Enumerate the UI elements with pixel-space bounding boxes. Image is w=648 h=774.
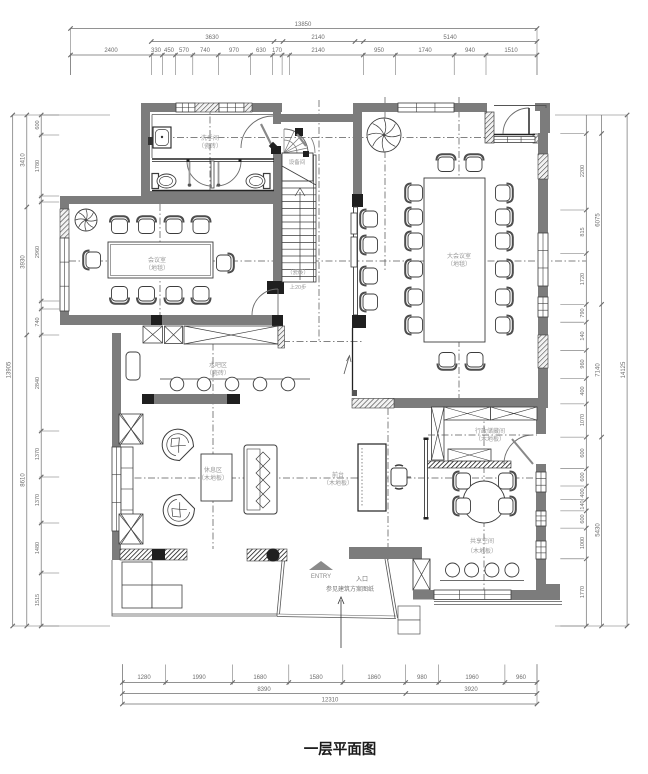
svg-text:570: 570: [179, 48, 190, 54]
svg-text:600: 600: [580, 448, 586, 457]
svg-text:参见建筑方案图纸: 参见建筑方案图纸: [326, 585, 374, 593]
svg-text:1370: 1370: [35, 494, 41, 506]
svg-text:960: 960: [516, 675, 527, 681]
svg-text:600: 600: [35, 120, 41, 129]
svg-text:1780: 1780: [35, 160, 41, 172]
svg-text:水吧区: 水吧区: [209, 361, 227, 369]
svg-text:（木地板）: （木地板）: [467, 547, 497, 555]
svg-text:1515: 1515: [35, 594, 41, 606]
svg-text:140: 140: [580, 331, 586, 340]
svg-text:（木地板）: （木地板）: [198, 474, 228, 482]
svg-text:共享空间: 共享空间: [470, 537, 494, 545]
svg-text:790: 790: [580, 308, 586, 317]
svg-text:（瓷砖）: （瓷砖）: [206, 369, 230, 377]
svg-text:1960: 1960: [465, 675, 479, 681]
svg-text:1580: 1580: [309, 675, 323, 681]
svg-text:7140: 7140: [596, 363, 602, 377]
svg-text:1480: 1480: [35, 542, 41, 554]
svg-text:960: 960: [580, 359, 586, 368]
svg-text:1370: 1370: [35, 448, 41, 460]
svg-text:1770: 1770: [580, 586, 586, 598]
svg-text:970: 970: [229, 48, 240, 54]
svg-text:一层平面图: 一层平面图: [304, 741, 377, 758]
svg-text:450: 450: [164, 48, 175, 54]
svg-text:1720: 1720: [580, 273, 586, 285]
svg-text:14125: 14125: [621, 361, 627, 378]
svg-text:1860: 1860: [367, 675, 381, 681]
svg-text:8610: 8610: [21, 473, 27, 487]
svg-text:2140: 2140: [311, 48, 325, 54]
svg-text:会议室: 会议室: [148, 256, 166, 264]
svg-text:ENTRY: ENTRY: [311, 574, 331, 580]
svg-text:740: 740: [35, 317, 41, 326]
svg-text:950: 950: [374, 48, 385, 54]
svg-text:8390: 8390: [257, 687, 271, 693]
svg-text:600: 600: [580, 472, 586, 481]
svg-text:1070: 1070: [580, 414, 586, 426]
svg-text:（瓷砖）: （瓷砖）: [287, 268, 309, 276]
svg-text:740: 740: [200, 48, 211, 54]
svg-text:400: 400: [580, 386, 586, 395]
svg-text:1740: 1740: [418, 48, 432, 54]
svg-text:休息区: 休息区: [204, 466, 222, 474]
svg-text:980: 980: [417, 675, 428, 681]
svg-text:2400: 2400: [104, 48, 118, 54]
svg-text:1000: 1000: [580, 537, 586, 549]
svg-text:1990: 1990: [192, 675, 206, 681]
svg-text:（瓷砖）: （瓷砖）: [198, 142, 222, 150]
svg-text:（木地板）: （木地板）: [475, 435, 505, 443]
svg-text:入口: 入口: [356, 576, 368, 583]
svg-text:洗手间: 洗手间: [201, 134, 219, 142]
svg-text:330: 330: [151, 48, 162, 54]
svg-text:13850: 13850: [295, 22, 312, 28]
svg-text:5140: 5140: [443, 35, 457, 41]
svg-text:630: 630: [256, 48, 267, 54]
svg-text:12310: 12310: [322, 698, 339, 704]
svg-text:设备间: 设备间: [289, 158, 306, 166]
svg-text:前台: 前台: [332, 471, 344, 479]
svg-text:（地毯）: （地毯）: [145, 264, 169, 272]
svg-text:940: 940: [465, 48, 476, 54]
svg-text:（木地板）: （木地板）: [323, 479, 353, 487]
svg-text:5430: 5430: [596, 523, 602, 537]
svg-text:上20步: 上20步: [289, 283, 307, 291]
svg-text:大会议室: 大会议室: [447, 252, 471, 260]
svg-text:1510: 1510: [504, 48, 518, 54]
svg-text:6075: 6075: [596, 213, 602, 227]
svg-text:2840: 2840: [35, 377, 41, 389]
svg-text:（地毯）: （地毯）: [447, 260, 471, 268]
svg-text:2140: 2140: [311, 35, 325, 41]
svg-text:3630: 3630: [205, 35, 219, 41]
svg-text:600: 600: [580, 514, 586, 523]
svg-text:3930: 3930: [21, 255, 27, 269]
svg-text:1680: 1680: [253, 675, 267, 681]
svg-text:1280: 1280: [137, 675, 151, 681]
svg-text:170: 170: [272, 48, 283, 54]
svg-text:2960: 2960: [35, 246, 41, 258]
svg-text:815: 815: [580, 227, 586, 236]
svg-text:13905: 13905: [7, 361, 13, 378]
svg-text:2200: 2200: [580, 165, 586, 177]
svg-text:3410: 3410: [21, 153, 27, 167]
svg-text:3920: 3920: [464, 687, 478, 693]
svg-text:400: 400: [580, 488, 586, 497]
svg-text:140: 140: [580, 500, 586, 509]
svg-text:行政储藏间: 行政储藏间: [475, 427, 505, 435]
